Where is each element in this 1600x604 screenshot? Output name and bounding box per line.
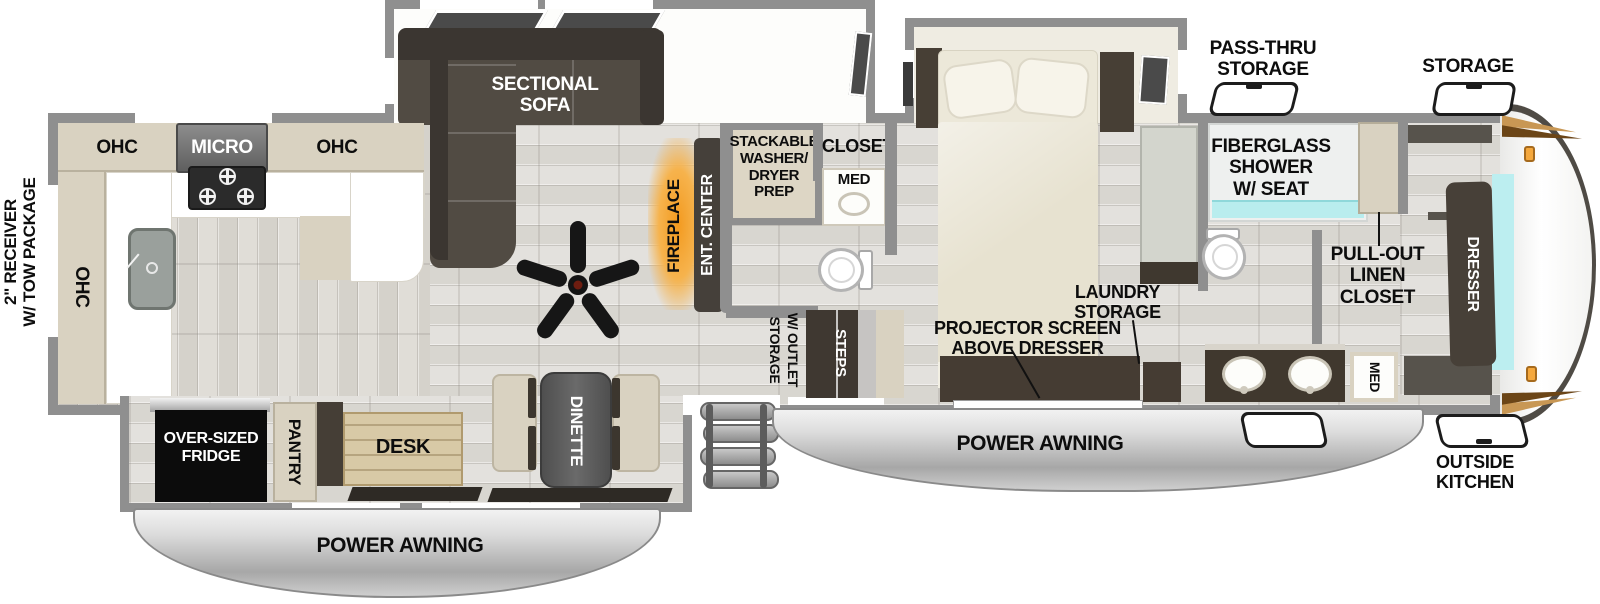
storage-outlet-label-line2: W/ OUTLET bbox=[784, 307, 800, 393]
bench-frame bbox=[528, 378, 536, 418]
bedroom-dresser bbox=[940, 356, 1140, 402]
bench-frame bbox=[612, 426, 620, 470]
pass-thru-storage-label: PASS-THRU STORAGE bbox=[1178, 38, 1348, 81]
ohc-label: OHC bbox=[77, 137, 157, 158]
fridge-label: OVER-SIZED FRIDGE bbox=[151, 430, 271, 466]
front-wall-top bbox=[1404, 125, 1492, 143]
steps-label: STEPS bbox=[832, 313, 848, 393]
pillow bbox=[1013, 56, 1090, 119]
bench-frame bbox=[528, 426, 536, 470]
med-label: MED bbox=[1366, 352, 1382, 402]
burner-icon bbox=[199, 188, 216, 205]
door-latch-icon bbox=[1466, 84, 1482, 89]
power-awning-right-label: POWER AWNING bbox=[880, 432, 1200, 456]
floor-mat bbox=[487, 488, 672, 502]
toilet-bowl-inner bbox=[828, 257, 855, 283]
burner-icon bbox=[219, 168, 236, 185]
burner-icon bbox=[237, 188, 254, 205]
wall bbox=[1398, 122, 1408, 214]
step-rail bbox=[706, 404, 713, 488]
wall bbox=[885, 123, 897, 255]
tv-icon bbox=[1138, 55, 1169, 105]
bench-frame bbox=[612, 378, 620, 418]
dresser-label: DRESSER bbox=[1461, 184, 1481, 364]
pantry-label: PANTRY bbox=[286, 402, 304, 502]
laundry-storage-label: LAUNDRY STORAGE bbox=[1040, 282, 1195, 322]
nightstand bbox=[1100, 52, 1134, 132]
storage-outlet-label-line1: STORAGE bbox=[766, 307, 782, 393]
step-rail bbox=[760, 404, 767, 488]
door-latch-icon bbox=[1476, 439, 1492, 444]
tv-icon bbox=[903, 62, 913, 106]
fireplace-label: FIREPLACE bbox=[664, 151, 684, 301]
laundry-cabinet bbox=[1143, 362, 1181, 402]
shower-teal-edge bbox=[1212, 200, 1364, 218]
sectional-sofa-label: SECTIONAL SOFA bbox=[445, 74, 645, 117]
faucet-icon bbox=[1306, 386, 1314, 394]
linen-closet bbox=[1358, 122, 1402, 214]
pillow bbox=[942, 57, 1019, 120]
marker-light-icon bbox=[1526, 366, 1537, 382]
window-gap bbox=[48, 185, 58, 337]
ohc-wall-label: OHC bbox=[72, 247, 92, 327]
power-awning-left-label: POWER AWNING bbox=[240, 534, 560, 558]
dinette-label: DINETTE bbox=[566, 376, 586, 486]
toilet-bowl-inner bbox=[1212, 244, 1238, 270]
window-gap bbox=[788, 397, 884, 405]
ohc-label: OHC bbox=[297, 137, 377, 158]
projector-screen-label: PROJECTOR SCREEN ABOVE DRESSER bbox=[900, 318, 1155, 358]
med-label: MED bbox=[824, 172, 884, 189]
sink-icon bbox=[838, 192, 870, 216]
fiberglass-shower-label: FIBERGLASS SHOWER W/ SEAT bbox=[1186, 136, 1356, 200]
micro-label: MICRO bbox=[176, 137, 268, 158]
window-gap bbox=[420, 0, 538, 9]
entry-step bbox=[703, 470, 779, 489]
ceiling-fan-icon bbox=[508, 215, 648, 355]
marker-light-icon bbox=[1524, 146, 1535, 162]
window-gap bbox=[545, 0, 653, 9]
pointer-line bbox=[1378, 212, 1380, 246]
pull-out-linen-label: PULL-OUT LINEN CLOSET bbox=[1295, 244, 1460, 308]
desk-label: DESK bbox=[343, 436, 463, 458]
door-latch-icon bbox=[1246, 84, 1262, 89]
storage-front-label: STORAGE bbox=[1408, 56, 1528, 77]
entry-step bbox=[703, 424, 779, 443]
compartment-door-icon bbox=[1239, 412, 1329, 448]
kitchen-island-top bbox=[350, 172, 424, 282]
floorplan-canvas: DRESSER SECTIONAL SOFA MICRO OHC OHC OHC bbox=[0, 0, 1600, 604]
cabinet-dark bbox=[317, 402, 343, 486]
kitchen-island-face bbox=[300, 216, 352, 280]
bedroom-wardrobe-base bbox=[1140, 262, 1198, 284]
window-gap bbox=[135, 113, 272, 123]
receiver-label: 2" RECEIVER W/ TOW PACKAGE bbox=[1, 137, 43, 367]
faucet-icon bbox=[1240, 386, 1248, 394]
front-cap bbox=[1500, 104, 1596, 426]
faucet-icon bbox=[146, 262, 158, 274]
window-gap bbox=[385, 58, 394, 104]
floor-mat bbox=[347, 487, 482, 501]
outside-kitchen-label: OUTSIDE KITCHEN bbox=[1405, 452, 1545, 492]
